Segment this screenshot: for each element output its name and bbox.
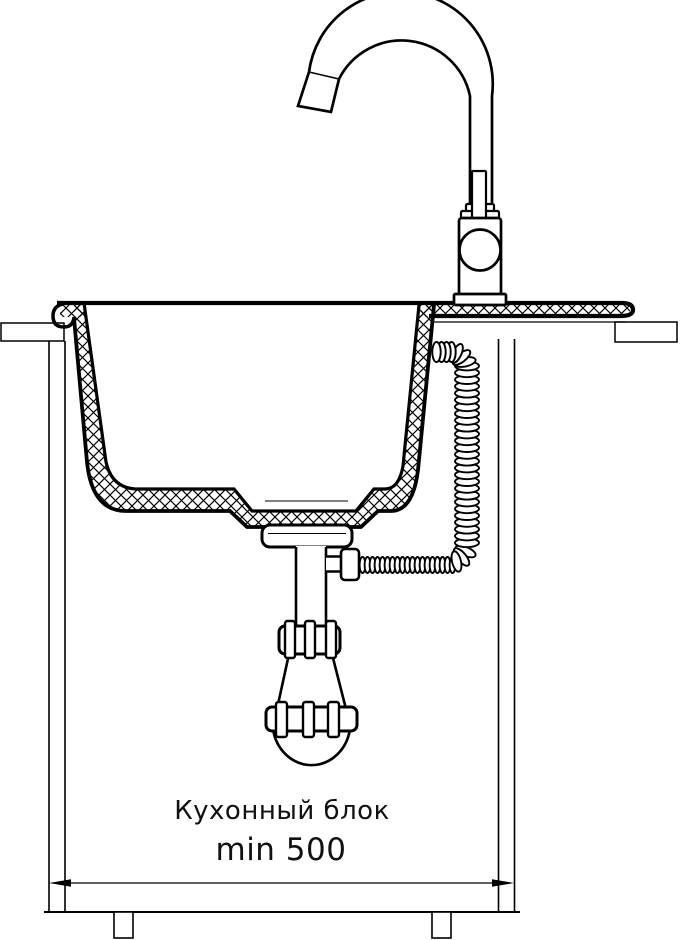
cabinet-leg bbox=[432, 912, 451, 938]
siphon-rib bbox=[326, 621, 336, 658]
siphon-rib bbox=[328, 702, 339, 737]
cabinet-right-wall bbox=[499, 339, 515, 912]
dimension-arrow-right bbox=[492, 879, 514, 887]
faucet-base bbox=[454, 294, 506, 305]
cabinet-leg bbox=[114, 912, 133, 938]
sink-installation-diagram: Кухонный блок min 500 bbox=[0, 0, 682, 940]
hose-top-run bbox=[432, 342, 476, 369]
dimension: Кухонный блок min 500 bbox=[49, 796, 514, 887]
dimension-arrow-left bbox=[49, 879, 71, 887]
siphon-rib bbox=[285, 621, 295, 658]
sink-bowl bbox=[53, 303, 633, 527]
faucet-spout bbox=[298, 0, 493, 214]
drain-flange bbox=[262, 525, 352, 547]
siphon-rib bbox=[305, 621, 315, 658]
drain-tailpipe-fill bbox=[296, 546, 326, 628]
hose-coil bbox=[455, 362, 479, 548]
siphon-rib bbox=[276, 702, 287, 737]
cabinet-left-wall bbox=[49, 341, 65, 912]
faucet-ball-joint bbox=[460, 230, 501, 271]
siphon bbox=[266, 621, 357, 765]
wall-bracket-right bbox=[615, 322, 677, 342]
hose-corrugated bbox=[360, 557, 456, 573]
drain-assembly bbox=[262, 525, 359, 628]
cabinet-label: Кухонный блок bbox=[174, 796, 390, 826]
siphon-cup bbox=[277, 654, 346, 709]
wall-bracket-left bbox=[1, 323, 64, 341]
dimension-value: min 500 bbox=[216, 832, 347, 868]
faucet-lever-rod bbox=[472, 171, 486, 221]
faucet bbox=[298, 0, 506, 305]
sink-bowl-inner bbox=[84, 303, 419, 511]
drain-branch-fill bbox=[326, 557, 342, 571]
siphon-rib bbox=[303, 702, 314, 737]
branch-nut bbox=[341, 549, 359, 580]
diagram-canvas: Кухонный блок min 500 bbox=[0, 0, 682, 940]
hose-loop bbox=[432, 342, 440, 362]
